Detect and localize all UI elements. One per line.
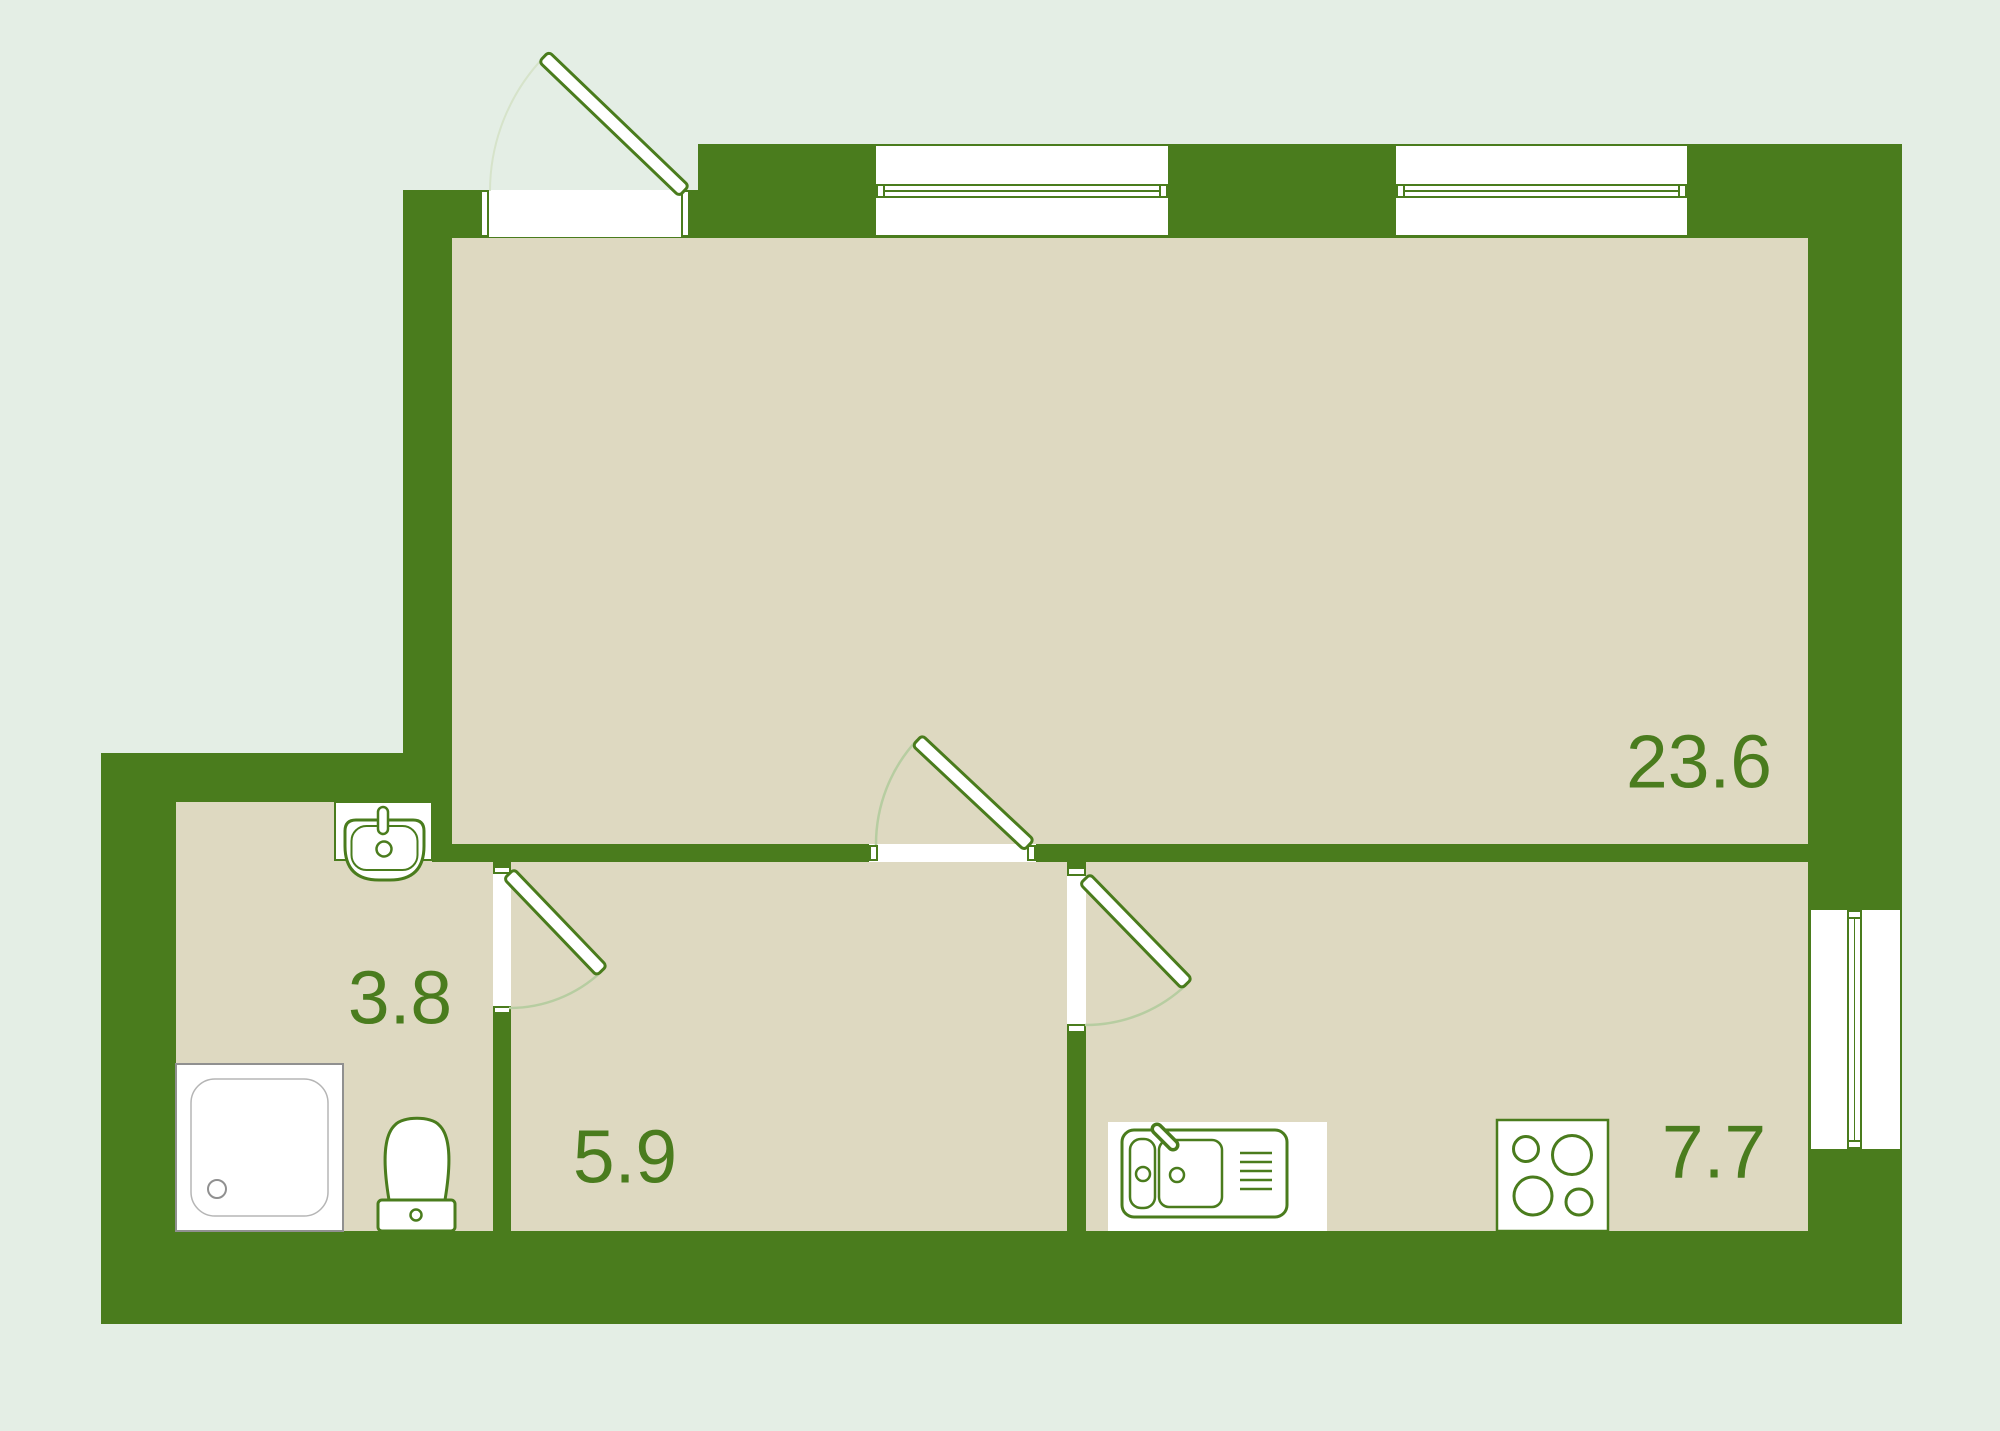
stove-hob-icon [1497,1120,1608,1231]
room-label-bathroom: 3.8 [348,961,452,1036]
floorplan-canvas: 23.6 3.8 5.9 7.7 [0,0,2000,1431]
shower-tray-icon [176,1064,343,1231]
kitchen-sink-drain-small [1136,1167,1150,1181]
bathroom-sink-drain [377,842,392,857]
room-label-hallway: 5.9 [573,1120,677,1195]
entry-door-leaf [539,52,689,196]
kitchen-door-leaf [1080,874,1192,988]
living-door-arc [876,740,917,845]
entry-door-arc [490,57,544,191]
kitchen-sink-drain-main [1170,1168,1184,1182]
living-door-leaf [913,735,1034,850]
fixtures-overlay [0,0,2000,1431]
kitchen-sink-basin-main [1159,1140,1222,1207]
room-label-kitchen: 7.7 [1662,1115,1766,1190]
toilet-bowl-icon [385,1118,449,1200]
room-label-living: 23.6 [1626,725,1772,800]
toilet-flush-button [411,1210,422,1221]
kitchen-door-arc [1085,984,1187,1025]
bathroom-door-leaf [504,869,607,975]
bathroom-door-arc [509,971,602,1008]
bathroom-sink-tap-icon [378,807,388,834]
shower-drain [208,1180,226,1198]
